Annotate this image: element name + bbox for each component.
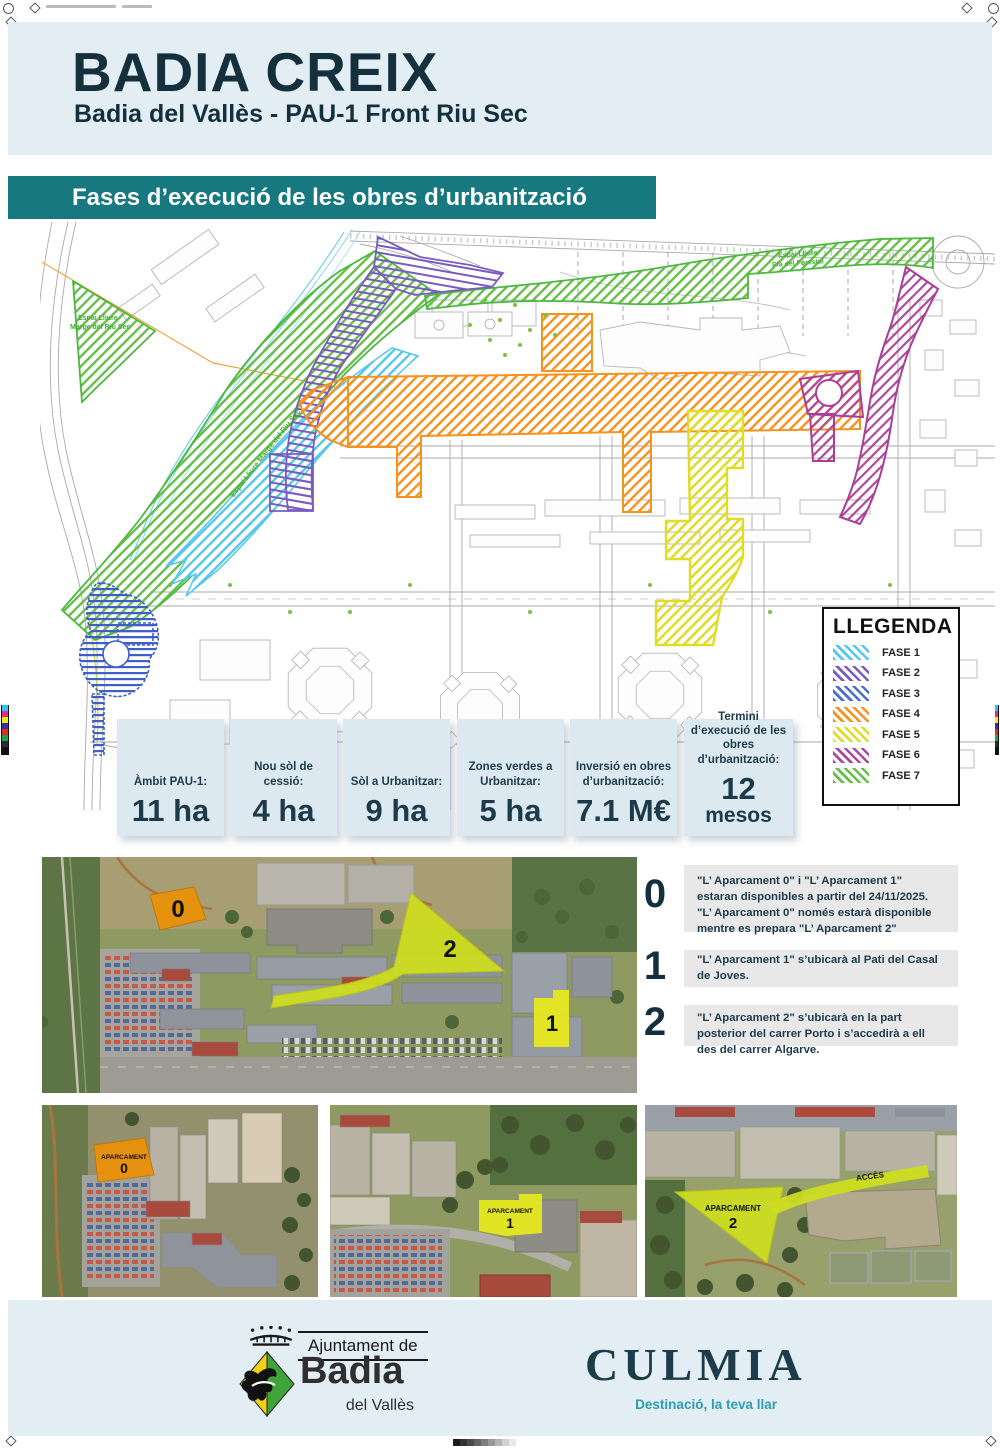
fase2-swatch-icon (833, 666, 869, 681)
photo-aparcament-0: APARCAMENT 0 (42, 1105, 318, 1297)
stat-value: 11 ha (132, 795, 210, 826)
fase6-swatch-icon (833, 748, 869, 763)
ajuntament-name: Badia (300, 1350, 403, 1393)
registration-mark-icon (961, 2, 972, 13)
culmia-logo: CULMIA (585, 1338, 807, 1391)
photo0-number: 0 (120, 1160, 128, 1176)
legend-label: FASE 4 (882, 708, 920, 720)
map-label-green-1b: Marge del Riu Sec (70, 324, 130, 331)
fase4-swatch-icon (833, 707, 869, 722)
print-slug (46, 5, 116, 8)
legend-label: FASE 5 (882, 729, 920, 741)
legend-title: LLEGENDA (833, 615, 949, 639)
crown-icon (248, 1326, 294, 1347)
registration-mark-icon (988, 3, 999, 14)
fase7-swatch-icon (833, 768, 869, 783)
photo1-title: APARCAMENT (487, 1208, 533, 1215)
stat-inversio: Inversió en obres d’urbanització: 7.1 M€ (570, 719, 677, 836)
fase1-swatch-icon (833, 645, 869, 660)
marker-0: 0 (171, 896, 184, 923)
stat-value: 9 ha (365, 795, 427, 826)
legend-label: FASE 2 (882, 667, 920, 679)
fase5-swatch-icon (833, 727, 869, 742)
poster: { "header": { "title": "BADIA CREIX", "s… (0, 0, 1000, 1449)
main-aerial-photo: 0 2 1 (42, 857, 637, 1093)
photo-aparcament-1: APARCAMENT 1 (330, 1105, 637, 1297)
print-slug (122, 5, 152, 8)
ajuntament-subname: del Vallès (300, 1397, 414, 1415)
note-number-0: 0 (638, 872, 672, 917)
stat-termini: Termini d’execució de les obres d’urbani… (684, 719, 793, 836)
stat-label: Àmbit PAU-1: (134, 775, 207, 789)
legend-label: FASE 3 (882, 688, 920, 700)
header: BADIA CREIX Badia del Vallès - PAU-1 Fro… (8, 22, 992, 155)
registration-mark-icon (985, 1435, 996, 1446)
map-fase6-areas (800, 267, 938, 524)
map-label-green-1a: Espai Lliure (78, 315, 118, 322)
stat-value-unit: mesos (705, 805, 772, 826)
registration-mark-icon (5, 1435, 16, 1446)
legend-label: FASE 7 (882, 770, 920, 782)
page-title: BADIA CREIX (72, 40, 439, 104)
stat-value: 7.1 M€ (576, 795, 671, 826)
legend-item: FASE 7 (833, 768, 949, 783)
stat-label: Termini d’execució de les obres d’urbani… (689, 710, 788, 768)
legend-item: FASE 2 (833, 666, 949, 681)
registration-mark-icon (3, 3, 14, 14)
footer (8, 1300, 992, 1436)
map-legend: LLEGENDA FASE 1 FASE 2 FASE 3 FASE 4 FAS… (822, 607, 960, 806)
stat-label: Sòl a Urbanitzar: (351, 775, 442, 789)
photo2-title: APARCAMENT (705, 1204, 761, 1213)
stat-ambit: Àmbit PAU-1: 11 ha (117, 719, 224, 836)
badia-coat-of-arms (238, 1350, 296, 1418)
section-title-bar: Fases d’execució de les obres d’urbanitz… (8, 176, 656, 219)
stat-value: 5 ha (479, 795, 541, 826)
note-number-1: 1 (638, 944, 672, 989)
page-subtitle: Badia del Vallès - PAU-1 Front Riu Sec (74, 100, 528, 129)
photo1-number: 1 (506, 1215, 514, 1231)
stat-label: Zones verdes a Urbanitzar: (462, 760, 559, 789)
stat-label: Inversió en obres d’urbanització: (575, 760, 672, 789)
fase3-swatch-icon (833, 686, 869, 701)
stat-label: Nou sòl de cessió: (235, 760, 332, 789)
legend-item: FASE 1 (833, 645, 949, 660)
stat-nou-sol: Nou sòl de cessió: 4 ha (230, 719, 337, 836)
legend-label: FASE 6 (882, 749, 920, 761)
note-text-0: "L’ Aparcament 0" i "L’ Aparcament 1" es… (684, 865, 958, 932)
color-calibration-bar (1, 705, 9, 755)
note-text-2: "L’ Aparcament 2" s’ubicarà en la part p… (684, 1005, 958, 1046)
photo2-number: 2 (729, 1215, 737, 1232)
note-number-2: 2 (638, 1000, 672, 1045)
legend-item: FASE 4 (833, 707, 949, 722)
note-text-1: "L’ Aparcament 1" s’ubicarà al Pati del … (684, 950, 958, 987)
legend-item: FASE 3 (833, 686, 949, 701)
stat-value: 4 ha (252, 795, 314, 826)
photo-aparcament-2: APARCAMENT 2 ACCÈS (645, 1105, 957, 1297)
legend-item: FASE 6 (833, 748, 949, 763)
stat-zones-verdes: Zones verdes a Urbanitzar: 5 ha (457, 719, 564, 836)
grayscale-calibration-bar (453, 1439, 516, 1446)
marker-1: 1 (546, 1011, 558, 1036)
marker-2: 2 (443, 936, 456, 963)
section-title: Fases d’execució de les obres d’urbanitz… (72, 184, 587, 211)
culmia-tagline: Destinació, la teva llar (585, 1397, 777, 1412)
registration-mark-icon (29, 2, 40, 13)
legend-label: FASE 1 (882, 647, 920, 659)
legend-item: FASE 5 (833, 727, 949, 742)
stat-sol-urbanitzar: Sòl a Urbanitzar: 9 ha (343, 719, 450, 836)
stat-value: 12 (721, 773, 755, 804)
